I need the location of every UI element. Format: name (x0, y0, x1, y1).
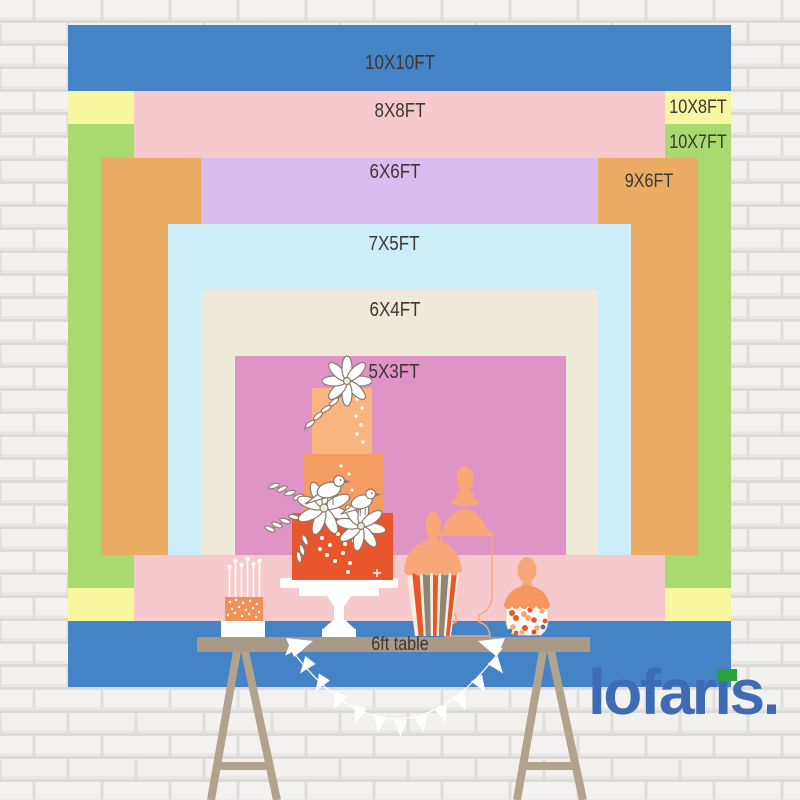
logo-green-accent (717, 669, 737, 681)
size-label-10x7ft: 10X7FT (669, 132, 727, 154)
size-label-6x6ft: 6X6FT (340, 161, 451, 183)
lofaris-logo: lofarıs. (588, 664, 780, 720)
size-label-6x4ft: 6X4FT (340, 299, 451, 321)
backdrop-size-chart: 10X10FT 10X8FT 10X7FT 8X8FT 9X6FT 6X6FT … (0, 0, 800, 800)
cake-stand (280, 578, 398, 637)
logo-text-i: ı (714, 656, 729, 728)
logo-period: . (763, 656, 781, 728)
tiered-cake (264, 356, 398, 637)
size-label-5x3ft: 5X3FT (339, 361, 450, 383)
size-label-8x8ft: 8X8FT (341, 100, 460, 122)
logo-text-pre: lofar (588, 656, 714, 728)
size-label-9x6ft: 9X6FT (621, 171, 677, 193)
size-label-10x10ft: 10X10FT (332, 52, 468, 74)
size-label-10x8ft: 10X8FT (669, 97, 727, 119)
size-label-7x5ft: 7X5FT (339, 233, 450, 255)
candy-jar (504, 557, 550, 636)
candle-cake (221, 557, 265, 637)
logo-text-post: s (729, 656, 762, 728)
table-size-label: 6ft table (336, 634, 464, 656)
